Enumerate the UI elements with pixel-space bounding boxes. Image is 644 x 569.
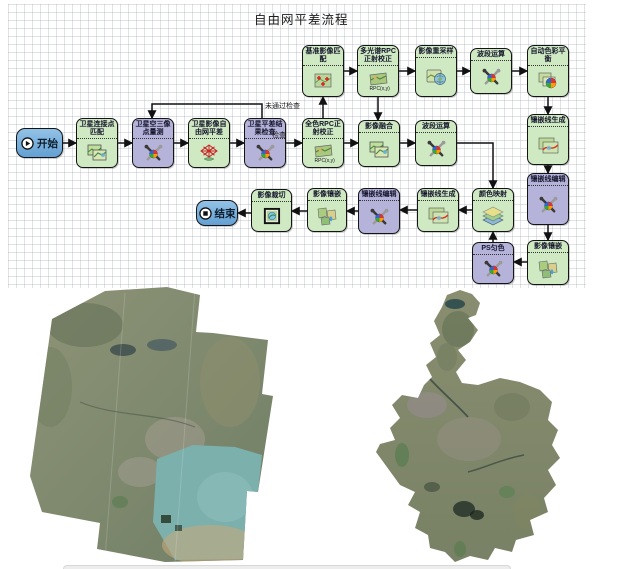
node-label: 镶嵌线编辑: [528, 174, 568, 186]
wrench-icon: [416, 133, 456, 165]
node-pan-rpc-ortho[interactable]: 全色RPC正射校正RPC(x,y): [302, 118, 344, 168]
node-label: 影像裁切: [252, 190, 291, 202]
node-mosaic-line-edit-b[interactable]: 镶嵌线编辑: [358, 188, 400, 234]
node-label: 结束: [215, 206, 236, 221]
play-icon: [21, 137, 34, 150]
globe-icon: [416, 58, 456, 96]
curve-icon: [528, 127, 568, 164]
node-adjust-check[interactable]: 卫星平差结果检查: [244, 118, 286, 168]
node-image-mosaic-r[interactable]: 影像镶嵌: [527, 240, 569, 285]
node-ps-uniform-color[interactable]: PS匀色: [472, 242, 514, 284]
page: 自由网平差流程 开始卫星连接点匹配卫星空三像点量测卫星影像自由网平差卫星平差结果…: [0, 0, 644, 569]
node-label: 影像重采样: [416, 46, 456, 58]
wrench-icon: [471, 61, 511, 93]
node-label: 卫星影像自由网平差: [189, 119, 229, 139]
images-icon: [77, 139, 117, 167]
photos-color-icon: [528, 66, 568, 96]
node-label: 多光谱RPC正射校正: [358, 46, 398, 66]
node-image-crop[interactable]: 影像裁切: [251, 189, 292, 232]
stop-icon: [199, 207, 212, 220]
node-auto-color-balance[interactable]: 自动色彩平衡: [527, 45, 569, 97]
wrench-icon: [473, 255, 513, 283]
node-label: 自动色彩平衡: [528, 46, 568, 66]
rpc-icon: RPC(x,y): [358, 66, 398, 96]
net-icon: [189, 139, 229, 167]
diagram-title: 自由网平差流程: [254, 9, 349, 28]
node-label: 镶嵌线生成: [418, 189, 458, 201]
node-free-net-adjust[interactable]: 卫星影像自由网平差: [188, 118, 230, 168]
node-label: 卫星连接点匹配: [77, 119, 117, 139]
svg-text:RPC(x,y): RPC(x,y): [315, 158, 336, 163]
node-label: PS匀色: [473, 243, 513, 255]
wrench-icon: [359, 201, 399, 233]
node-ms-rpc-ortho[interactable]: 多光谱RPC正射校正RPC(x,y): [357, 45, 399, 97]
node-mosaic-line-edit-r[interactable]: 镶嵌线编辑: [527, 173, 569, 225]
node-mosaic-line-gen-r[interactable]: 镶嵌线生成: [527, 114, 569, 165]
node-label: 基准影像匹配: [303, 46, 343, 66]
edge-label: 检查: [272, 132, 286, 140]
node-label: 开始: [37, 136, 58, 151]
node-sat-triangulation[interactable]: 卫星空三像点量测: [132, 118, 174, 168]
node-label: 影像镶嵌: [308, 189, 346, 201]
node-image-mosaic-b[interactable]: 影像镶嵌: [307, 188, 347, 232]
node-label: 镶嵌线编辑: [359, 189, 399, 201]
node-label: 颜色映射: [473, 189, 513, 201]
crop-icon: [252, 202, 291, 231]
node-label: 影像融合: [359, 121, 399, 133]
mosaic-icon: [528, 253, 568, 284]
match-icon: [303, 66, 343, 96]
wrench-icon: [133, 139, 173, 167]
node-label: 影像镶嵌: [528, 241, 568, 253]
node-resample[interactable]: 影像重采样: [415, 45, 457, 97]
mosaic-icon: [308, 201, 346, 231]
node-mosaic-line-gen-b[interactable]: 镶嵌线生成: [417, 188, 459, 232]
layers-icon: [473, 201, 513, 231]
node-label: 镶嵌线生成: [528, 115, 568, 127]
edge-label: 未通过检查: [265, 103, 300, 111]
node-start[interactable]: 开始: [16, 128, 63, 158]
bottom-scrollbar[interactable]: [63, 565, 511, 569]
wrench-icon: [528, 186, 568, 224]
node-tie-point-match[interactable]: 卫星连接点匹配: [76, 118, 118, 168]
images-icon: [359, 133, 399, 166]
node-band-calc-top[interactable]: 波段运算: [470, 48, 512, 94]
node-label: 波段运算: [471, 49, 511, 61]
wrench-icon: [245, 139, 285, 167]
node-label: 卫星空三像点量测: [133, 119, 173, 139]
node-base-image-match[interactable]: 基准影像匹配: [302, 45, 344, 97]
svg-text:RPC(x,y): RPC(x,y): [370, 86, 391, 91]
curve-icon: [418, 201, 458, 231]
node-label: 全色RPC正射校正: [303, 119, 343, 139]
node-band-calc-mid[interactable]: 波段运算: [415, 120, 457, 166]
node-fusion[interactable]: 影像融合: [358, 120, 400, 167]
region-boundary-image: [372, 287, 572, 565]
node-label: 波段运算: [416, 121, 456, 133]
node-color-map[interactable]: 颜色映射: [472, 188, 514, 232]
satellite-mosaic-image: [25, 287, 277, 565]
node-end[interactable]: 结束: [196, 200, 238, 226]
rpc-icon: RPC(x,y): [303, 139, 343, 167]
